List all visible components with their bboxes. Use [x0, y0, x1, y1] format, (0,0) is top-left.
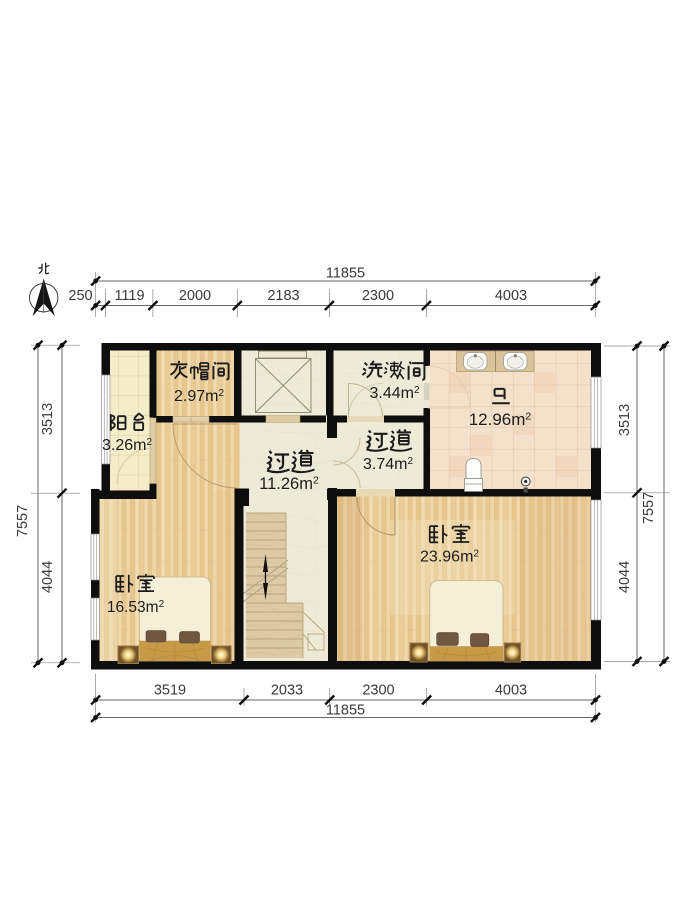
svg-text:7557: 7557 — [15, 505, 31, 537]
svg-text:3.44m2: 3.44m2 — [369, 385, 419, 402]
svg-text:250: 250 — [68, 288, 92, 304]
svg-text:4003: 4003 — [495, 683, 527, 699]
svg-text:3519: 3519 — [154, 683, 186, 699]
svg-text:7557: 7557 — [641, 492, 657, 524]
svg-text:2183: 2183 — [267, 288, 299, 304]
svg-text:2.97m2: 2.97m2 — [174, 388, 224, 405]
svg-text:3513: 3513 — [40, 403, 56, 435]
svg-text:3513: 3513 — [617, 404, 633, 436]
svg-text:4044: 4044 — [617, 561, 633, 593]
svg-text:3.74m2: 3.74m2 — [363, 456, 413, 473]
svg-text:2300: 2300 — [362, 288, 394, 304]
svg-text:11855: 11855 — [326, 703, 365, 719]
svg-text:16.53m2: 16.53m2 — [107, 599, 165, 616]
svg-text:12.96m2: 12.96m2 — [469, 410, 532, 429]
svg-text:23.96m2: 23.96m2 — [420, 549, 479, 566]
svg-text:4003: 4003 — [495, 288, 527, 304]
svg-text:2033: 2033 — [271, 683, 303, 699]
svg-text:1119: 1119 — [114, 288, 144, 304]
svg-text:4044: 4044 — [40, 561, 56, 593]
svg-text:3.26m2: 3.26m2 — [102, 437, 152, 454]
svg-text:11.26m2: 11.26m2 — [259, 475, 319, 494]
svg-text:2000: 2000 — [179, 288, 211, 304]
svg-text:2300: 2300 — [362, 683, 394, 699]
svg-text:11855: 11855 — [326, 266, 365, 282]
